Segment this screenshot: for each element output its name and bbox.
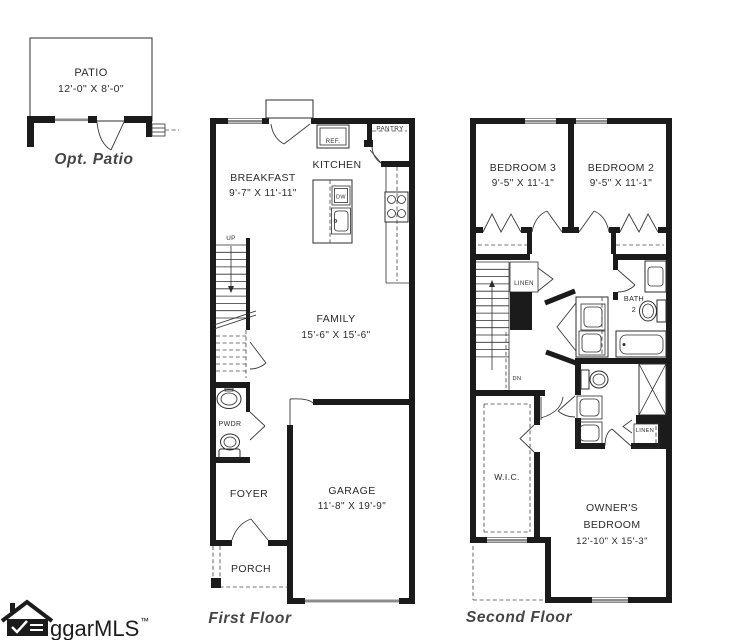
second-floor-plan: BEDROOM 3 9'-5" X 11'-1" BEDROOM 2 9'-5"… [466, 118, 672, 626]
rear-door-leaf [284, 124, 310, 144]
linen-upper-door [538, 268, 553, 291]
refrigerator: REF. [317, 125, 349, 148]
bedroom2-door-arc [594, 211, 609, 232]
bedroom3-window [525, 120, 556, 123]
kitchen-label: KITCHEN [313, 159, 362, 171]
patio-door-leaf [111, 122, 124, 150]
linen-upper-label: LINEN [514, 281, 534, 287]
powder-door [250, 412, 265, 440]
bath2-number: 2 [632, 305, 636, 314]
bath2: BATH 2 [613, 254, 666, 357]
owners-sink-1 [577, 396, 602, 419]
floor-plan-sheet: PATIO 12'-0" X 8'-0" Opt. Patio PANTRY [0, 0, 739, 640]
second-floor-caption: Second Floor [466, 609, 573, 626]
patio-dims-label: 12'-0" X 8'-0" [58, 83, 124, 95]
bedroom2-window [576, 120, 607, 123]
porch: PORCH [211, 546, 287, 588]
breakfast-dims: 9'-7" X 11'-11" [229, 188, 297, 199]
garage-dims: 11'-8" X 19'-9" [318, 501, 386, 512]
breakfast-window [228, 120, 262, 123]
bedroom3-closet-bifold [483, 214, 521, 232]
bedroom2-label: BEDROOM 2 [588, 162, 655, 174]
patio-window [55, 119, 88, 122]
owners-bedroom-dims: 12'-10" X 15'-3" [576, 536, 648, 547]
dishwasher-label: DW [336, 195, 346, 201]
bath2-toilet [657, 300, 666, 322]
garage-label: GARAGE [328, 485, 375, 497]
wic-door [520, 425, 534, 452]
bedroom3-door-arc [532, 211, 547, 232]
owners-window [592, 599, 628, 602]
owners-bedroom-door-leaf [612, 429, 631, 446]
powder-toilet [221, 434, 240, 450]
pantry-door-arc [372, 147, 381, 163]
bedroom3-dims: 9'-5" X 11'-1" [492, 178, 555, 189]
mls-watermark: ggarMLS ™ [2, 602, 149, 640]
family-label: FAMILY [317, 313, 356, 325]
stairs-direction-arrow [228, 286, 234, 293]
patio-outline [30, 38, 152, 121]
bedroom3-label: BEDROOM 3 [490, 162, 557, 174]
wic-window [487, 539, 527, 542]
dn-label: DN [513, 376, 522, 382]
walk-in-closet: W.I.C. [484, 396, 540, 537]
owners-toilet [581, 370, 589, 389]
patio-door-arc [97, 122, 111, 150]
owners-bath-double-door [557, 303, 576, 351]
owners-bath [558, 364, 666, 449]
foyer-label: FOYER [230, 488, 268, 500]
bedroom3-door-leaf [547, 211, 562, 232]
garage-entry-arc [290, 399, 313, 403]
rear-stoop [266, 100, 313, 118]
linen-lower-door [623, 420, 632, 433]
patio-room-label: PATIO [74, 67, 107, 79]
family-dims: 15'-6" X 15'-6" [301, 330, 370, 341]
bath2-door-arc [618, 285, 635, 292]
owners-bath-door-arc [558, 411, 575, 417]
linen-lower-label: LINEN [636, 428, 654, 434]
bedroom2-door-leaf [579, 211, 594, 232]
powder-room: PWDR [210, 382, 265, 463]
vanity-double-sink [576, 297, 608, 357]
owners-bedroom-label-2: BEDROOM [583, 519, 640, 531]
front-door-leaf [251, 519, 268, 540]
first-floor-caption: First Floor [208, 610, 292, 627]
hall-door-arc [541, 397, 563, 418]
house-roof [2, 602, 52, 621]
watermark-brand: ggarMLS [50, 616, 139, 640]
bath2-door-leaf [618, 270, 635, 285]
first-floor-plan: PANTRY REF. DW KITCHE [208, 100, 415, 627]
watermark-tm: ™ [140, 616, 149, 626]
ref-label: REF. [326, 139, 341, 145]
hall-door-arc [250, 363, 266, 369]
owners-bath-door-leaf [558, 396, 575, 411]
porch-column [211, 578, 221, 588]
opt-patio-caption: Opt. Patio [54, 151, 133, 168]
pantry-label: PANTRY [376, 126, 404, 133]
owners-bedroom-label-1: OWNER'S [586, 502, 638, 514]
hall-door-leaf [250, 342, 266, 363]
rear-door-arc [271, 124, 284, 144]
stairs-up: UP [214, 235, 256, 378]
garage-door [305, 600, 399, 603]
front-door-arc [232, 519, 251, 540]
wic-label: W.I.C. [494, 472, 520, 482]
stove [385, 192, 408, 222]
bath2-label: BATH [624, 294, 644, 303]
powder-label: PWDR [219, 421, 242, 428]
kitchen-island: DW [313, 180, 352, 243]
opt-patio-detail: PATIO 12'-0" X 8'-0" Opt. Patio [27, 38, 179, 168]
bedroom2-dims: 9'-5" X 11'-1" [590, 178, 653, 189]
breakfast-label: BREAKFAST [230, 172, 296, 184]
pantry-door-leaf [370, 150, 381, 163]
porch-label: PORCH [231, 563, 271, 575]
owners-bedroom-door-arc [605, 429, 612, 446]
bedroom2-closet-bifold [620, 214, 658, 232]
linen-upper-closet: LINEN [510, 262, 553, 292]
up-label: UP [226, 235, 236, 242]
